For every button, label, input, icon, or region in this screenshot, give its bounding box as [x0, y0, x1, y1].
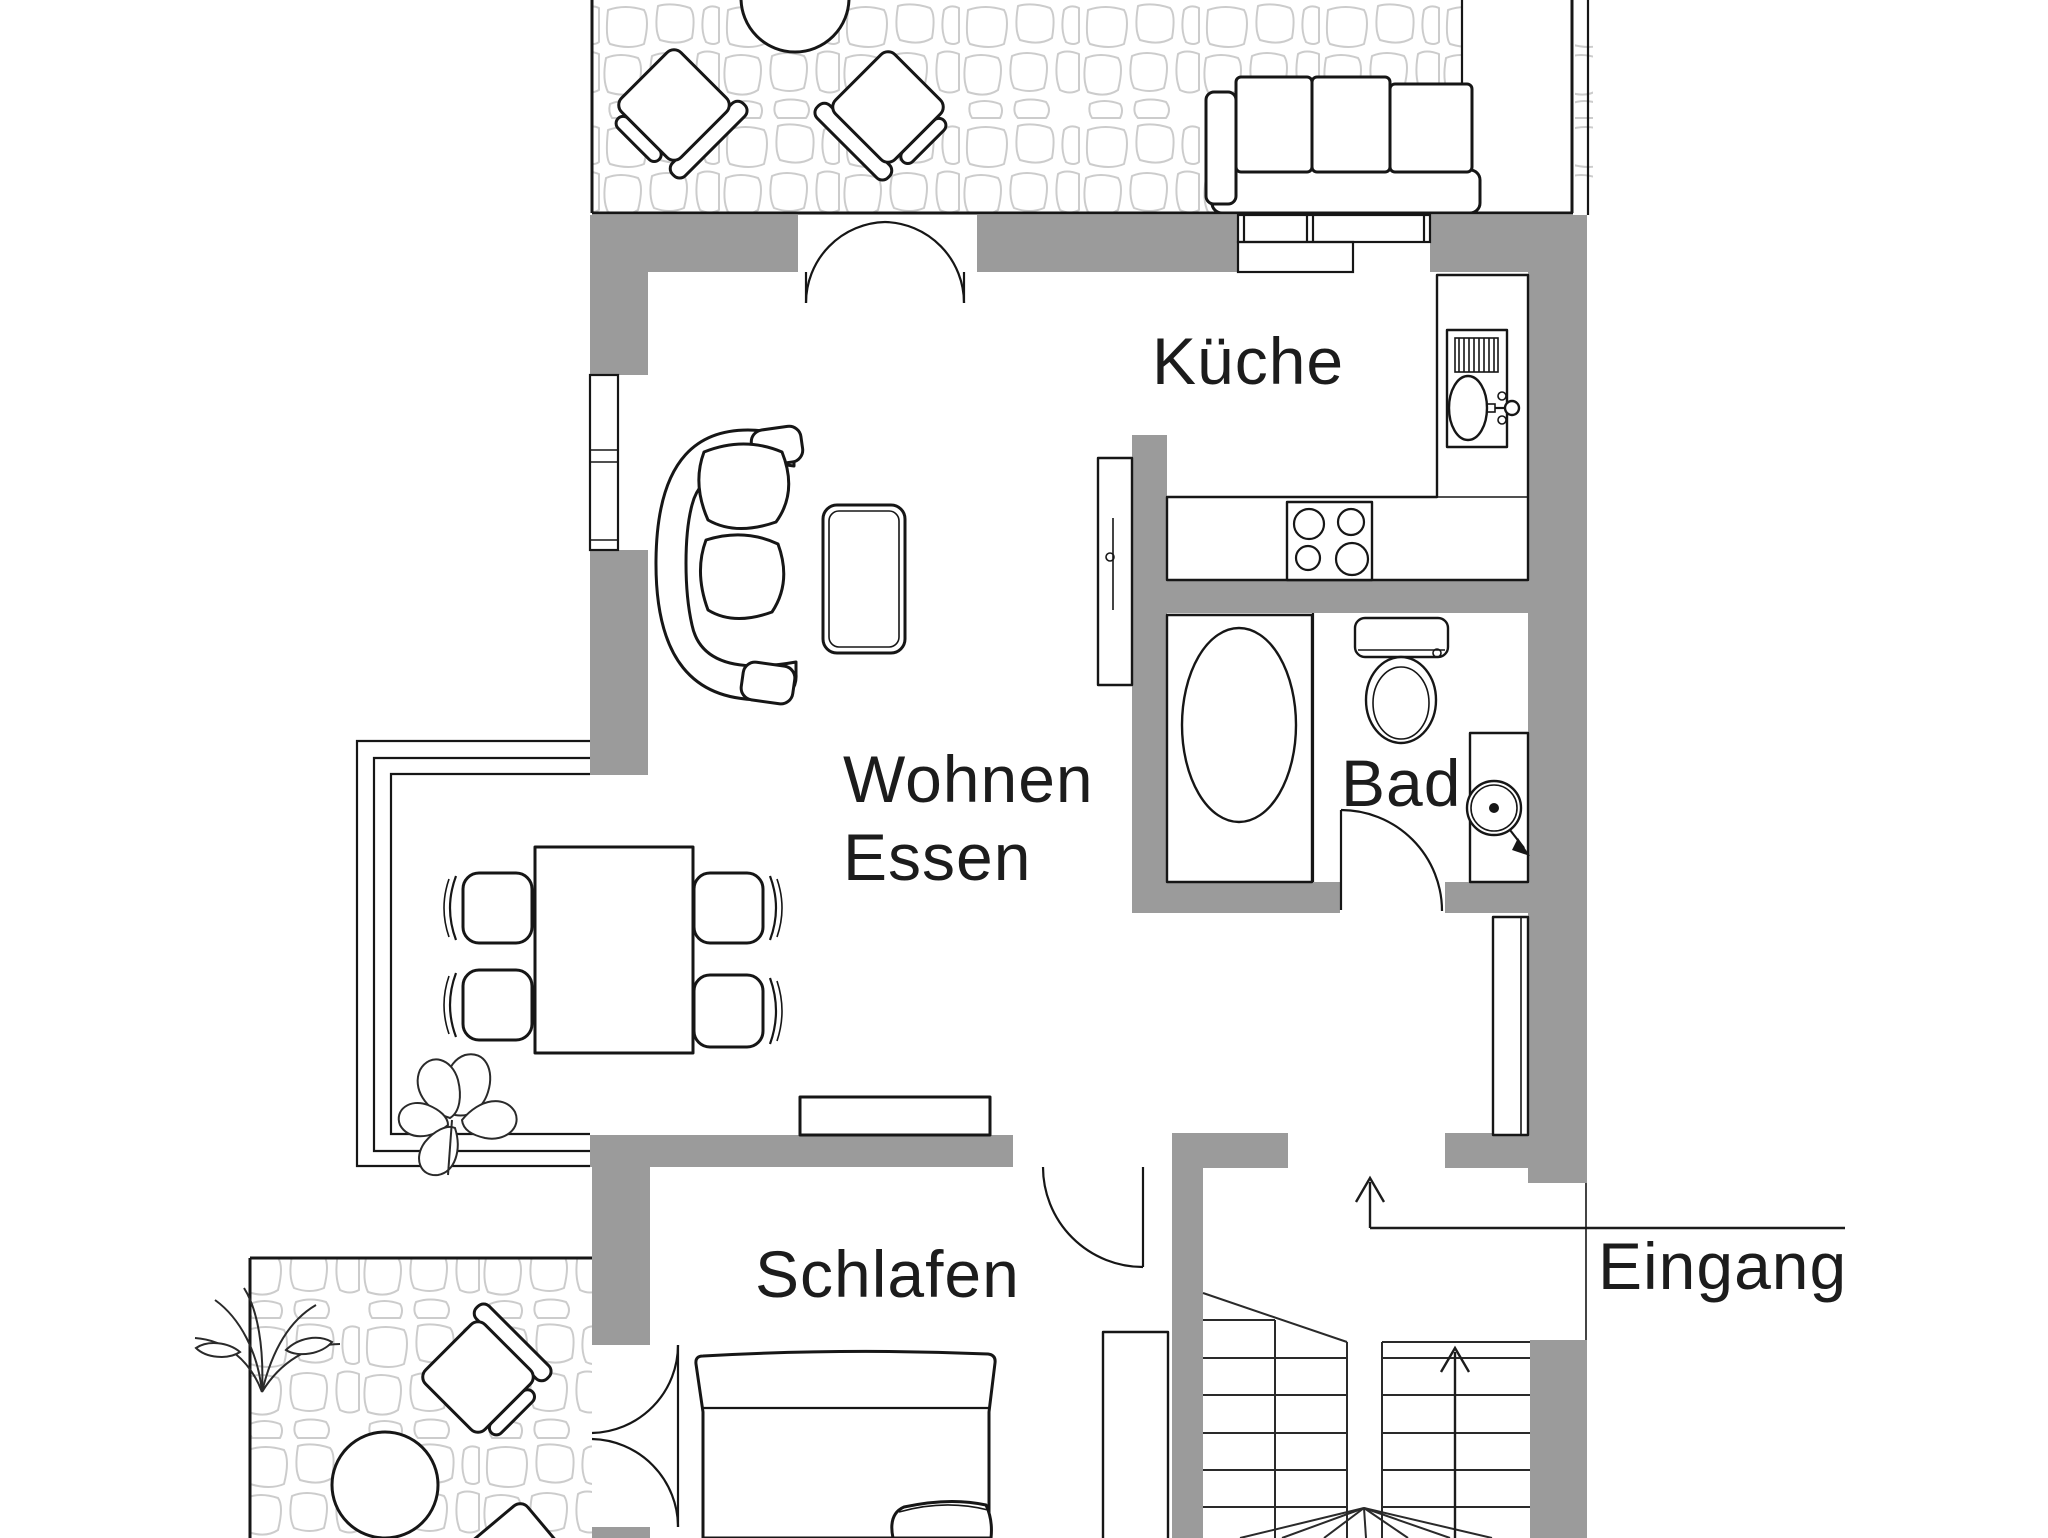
kitchen-window	[1238, 215, 1430, 272]
wardrobe	[1103, 1332, 1168, 1538]
coffee-table	[823, 505, 905, 653]
living-window	[590, 375, 648, 550]
toilet	[1355, 618, 1448, 743]
floor-plan: Küche Wohnen Essen Bad Schlafen Eingang	[0, 0, 2048, 1538]
balcony-double-door-bedroom	[592, 1345, 678, 1527]
washbasin	[1467, 733, 1530, 882]
dining-chair	[444, 873, 532, 943]
room-label-living-dining: Wohnen Essen	[843, 741, 1094, 897]
dining-chair	[694, 873, 782, 943]
patio-round-table	[332, 1432, 438, 1538]
terrace-sofa	[1206, 77, 1480, 213]
room-label-living: Wohnen	[843, 741, 1094, 819]
bed	[696, 1351, 995, 1538]
french-door-terrace	[806, 222, 964, 303]
room-label-bathroom: Bad	[1341, 745, 1461, 823]
room-label-kitchen: Küche	[1152, 323, 1344, 401]
staircase	[1203, 1293, 1530, 1538]
kitchen-sink	[1447, 330, 1519, 447]
dining-chair	[694, 975, 782, 1047]
sideboard	[800, 1097, 990, 1135]
terrace-stone-strip	[1575, 18, 1593, 195]
entry-door	[1493, 917, 1528, 1135]
dining-chair	[444, 970, 532, 1040]
dining-table	[535, 847, 693, 1053]
bathroom-door	[1341, 810, 1442, 911]
stove	[1287, 502, 1372, 580]
room-label-bedroom: Schlafen	[755, 1236, 1020, 1314]
bedroom-door	[1043, 1167, 1143, 1267]
room-label-dining: Essen	[843, 819, 1094, 897]
curved-sofa	[656, 425, 804, 706]
bathtub	[1167, 615, 1312, 882]
room-label-entrance: Eingang	[1598, 1228, 1847, 1306]
stair-direction-arrow	[1441, 1348, 1469, 1538]
tall-cabinet	[1098, 458, 1132, 685]
plant-monstera	[399, 1054, 517, 1175]
